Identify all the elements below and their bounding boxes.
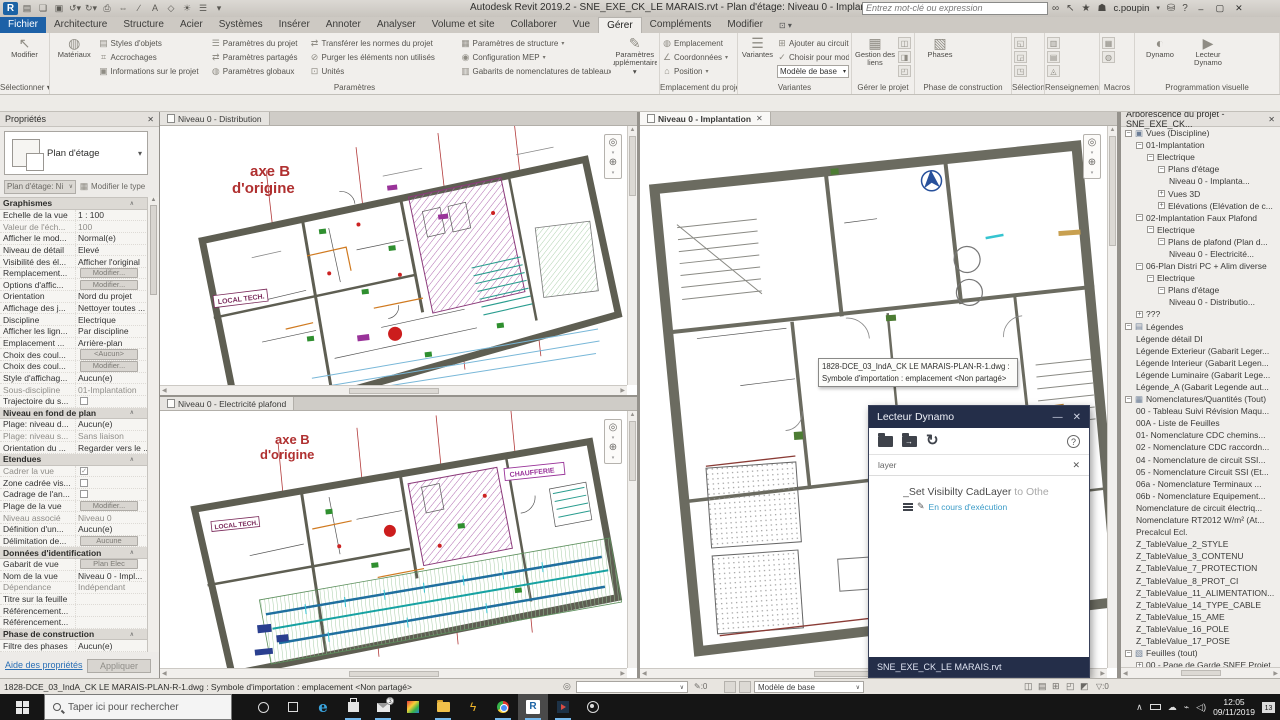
- ribbon-tool-img-icon[interactable]: ◫: [898, 37, 911, 49]
- tree-item[interactable]: Z_TableValue_17_POSE: [1123, 635, 1278, 647]
- ribbon-button-gabarits-de-nomenclatures-de-tableaux[interactable]: ▥Gabarits de nomenclatures de tableaux▾: [461, 64, 611, 78]
- taskbar-icon-obs[interactable]: [578, 694, 608, 720]
- property-value[interactable]: [76, 479, 148, 487]
- property-label: Référencement...: [0, 605, 76, 616]
- floor-plan-doc-icon: [647, 114, 655, 123]
- dynamo-refresh-icon[interactable]: ↻: [926, 433, 939, 449]
- ribbon-tool-selid-icon[interactable]: ▤: [1047, 51, 1060, 63]
- tree-item[interactable]: −02-Implantation Faux Plafond: [1123, 212, 1278, 224]
- ribbon-button-variantes[interactable]: ☰Variantes: [740, 34, 775, 82]
- property-row: Affichage des j...Nettoyer toutes ...: [0, 303, 148, 315]
- property-checkbox[interactable]: [80, 479, 88, 487]
- steering-wheel-icon[interactable]: ◎: [609, 422, 618, 434]
- property-row: Définition d'un...Aucun(e): [0, 524, 148, 536]
- dynamo-script-item[interactable]: _Set Visibilty CadLayer to Othe: [903, 486, 1089, 498]
- print-icon[interactable]: ⎙: [100, 2, 114, 15]
- filter-icon-count[interactable]: ▽:0: [1096, 682, 1109, 691]
- press-drag-icon[interactable]: ▤: [1038, 681, 1047, 692]
- ribbon-button-label: Coordonnées: [674, 53, 722, 62]
- user-avatar-icon[interactable]: ☗: [1098, 1, 1107, 17]
- zoom-expand-icon[interactable]: ▾: [1091, 170, 1094, 176]
- tree-item[interactable]: −▤Légendes: [1123, 321, 1278, 333]
- horizontal-scrollbar[interactable]: ◀▶: [160, 668, 627, 678]
- horizontal-scrollbar[interactable]: ◀▶: [160, 385, 627, 395]
- properties-help-link[interactable]: Aide des propriétés: [5, 660, 83, 670]
- taskbar-icon-snagit[interactable]: ϟ: [458, 694, 488, 720]
- tree-expand-icon[interactable]: −: [1136, 263, 1143, 270]
- taskbar-search-box[interactable]: Taper ici pour rechercher: [44, 694, 232, 720]
- default-3d-view-icon[interactable]: ◇: [164, 2, 178, 15]
- taskbar-icon-store[interactable]: [338, 694, 368, 720]
- aligned-dimension-icon[interactable]: ∕: [132, 2, 146, 15]
- project-browser-hscrollbar[interactable]: ◀▶: [1121, 667, 1280, 678]
- property-value[interactable]: Modifier...: [76, 501, 148, 512]
- battery-icon[interactable]: [1150, 704, 1161, 710]
- tree-item[interactable]: 00 - Tableau Suivi Révision Maqu...: [1123, 405, 1278, 417]
- ribbon-button-phases[interactable]: ▧Phases: [917, 34, 963, 82]
- tree-item[interactable]: −Electrique: [1123, 151, 1278, 163]
- ribbon-tab-analyser[interactable]: Analyser: [369, 17, 424, 33]
- ribbon-tab-vue[interactable]: Vue: [565, 17, 598, 33]
- tree-item[interactable]: Niveau 0 - Distributio...: [1123, 296, 1278, 308]
- taskbar-icon-explorer[interactable]: [428, 694, 458, 720]
- tree-item[interactable]: +Vues 3D: [1123, 187, 1278, 199]
- measure-icon[interactable]: ⇔: [116, 2, 130, 15]
- tree-expand-icon[interactable]: +: [1158, 202, 1165, 209]
- taskbar-icon-photos[interactable]: [398, 694, 428, 720]
- zoom-icon[interactable]: ⊕: [609, 442, 617, 454]
- tree-item[interactable]: Niveau 0 - Electricité...: [1123, 248, 1278, 260]
- property-checkbox[interactable]: [80, 397, 88, 405]
- property-value[interactable]: Niveau 0 - Impl...: [76, 571, 148, 581]
- ribbon-tab-collaborer[interactable]: Collaborer: [503, 17, 565, 33]
- taskbar-icon-taskview[interactable]: [278, 694, 308, 720]
- favorites-star-icon[interactable]: ★: [1082, 1, 1091, 17]
- zoom-icon[interactable]: ⊕: [1088, 157, 1096, 169]
- tree-item-label: Plans de plafond (Plan d...: [1168, 237, 1268, 247]
- property-value[interactable]: Sans liaison: [76, 431, 148, 441]
- tree-item[interactable]: Z_TableValue_7_PROTECTION: [1123, 562, 1278, 574]
- redo-icon[interactable]: ↻▾: [84, 2, 98, 15]
- tree-item[interactable]: −Plans d'étage: [1123, 284, 1278, 296]
- taskbar-clock[interactable]: 12:05 09/11/2019: [1213, 697, 1255, 717]
- tree-item-label: Z_TableValue_11_ALIMENTATION...: [1136, 588, 1274, 598]
- vertical-scrollbar[interactable]: ▲: [627, 411, 637, 668]
- property-value[interactable]: [76, 490, 148, 498]
- ribbon-tab-structure[interactable]: Structure: [115, 17, 172, 33]
- group-label: Données d'identification: [3, 548, 101, 558]
- tree-item[interactable]: Z_TableValue_14_TYPE_CABLE: [1123, 599, 1278, 611]
- dynamo-minimize-icon[interactable]: —: [1053, 412, 1063, 423]
- ribbon-tool-savesel-icon[interactable]: ◱: [1014, 37, 1027, 49]
- tree-item[interactable]: Z_TableValue_8_PROT_CI: [1123, 574, 1278, 586]
- text-tool-icon[interactable]: A: [148, 2, 162, 15]
- property-group-header[interactable]: Niveau en fond de plan∧: [0, 408, 148, 420]
- property-value[interactable]: Afficher l'original: [76, 257, 148, 267]
- restore-button[interactable]: ▢: [1214, 3, 1226, 14]
- design-option-ribbon-combo[interactable]: Modèle de base▾: [777, 65, 849, 78]
- network-icon[interactable]: ⌁: [1184, 702, 1189, 712]
- ribbon-button-modifier[interactable]: ↖Modifier: [2, 34, 47, 82]
- tree-item[interactable]: Légende détail DI: [1123, 333, 1278, 345]
- property-group-header[interactable]: Graphismes∧: [0, 198, 148, 210]
- combo-arrow-icon: ▾: [843, 68, 846, 75]
- tree-item[interactable]: +00 - Page de Garde SNEE Projet...: [1123, 659, 1278, 667]
- property-value[interactable]: Nettoyer toutes ...: [76, 303, 148, 313]
- property-value[interactable]: Regarder vers le ...: [76, 443, 148, 453]
- taskbar-icon-chrome[interactable]: [488, 694, 518, 720]
- tree-item[interactable]: Z_TableValue_16_POLE: [1123, 623, 1278, 635]
- tree-expand-icon[interactable]: −: [1125, 650, 1132, 657]
- tree-item-label: Nomenclature de circuit électriq...: [1136, 503, 1262, 513]
- clock-time: 12:05: [1213, 697, 1255, 707]
- ribbon-tool-macrosec-icon[interactable]: ◍: [1102, 51, 1115, 63]
- property-value[interactable]: Aucune: [76, 536, 148, 547]
- exclude-options-icon[interactable]: ◫: [1024, 681, 1033, 692]
- ribbon-tab-g-rer[interactable]: Gérer: [598, 17, 642, 33]
- tree-expand-icon[interactable]: −: [1136, 142, 1143, 149]
- tree-expand-icon[interactable]: −: [1147, 275, 1154, 282]
- infocenter-search-input[interactable]: Entrez mot-clé ou expression: [862, 2, 1048, 15]
- taskbar-icon-mail[interactable]: 3: [368, 694, 398, 720]
- tree-item[interactable]: 05 - Nomenclature Circuit SSI (Et...: [1123, 466, 1278, 478]
- tree-item[interactable]: 06a - Nomenclature Terminaux ...: [1123, 478, 1278, 490]
- property-label: Nom de la vue: [0, 571, 76, 582]
- ribbon-tab-syst-mes[interactable]: Systèmes: [211, 17, 271, 33]
- property-value[interactable]: Niveau 0: [76, 513, 148, 523]
- property-edit-button[interactable]: Modifier...: [80, 280, 138, 291]
- property-value[interactable]: 1 : 100: [76, 210, 148, 220]
- search-icon[interactable]: ∞: [1052, 1, 1059, 17]
- revit-app-menu-icon[interactable]: R: [3, 2, 18, 15]
- ribbon-tab-compl-ments[interactable]: Compléments: [642, 17, 720, 33]
- tree-item-label: Precalcul Ecl.: [1136, 527, 1188, 537]
- dynamo-filter-bar[interactable]: layer ✕: [869, 455, 1089, 476]
- design-option-combo[interactable]: Modèle de base∨: [754, 681, 864, 693]
- drawing-canvas-distribution[interactable]: axe B d'origine: [160, 126, 637, 395]
- open-icon[interactable]: ❏: [36, 2, 50, 15]
- tree-expand-icon[interactable]: −: [1158, 287, 1165, 294]
- property-row: Remplacement...Modifier...: [0, 268, 148, 280]
- tree-item[interactable]: Z_TableValue_11_ALIMENTATION...: [1123, 587, 1278, 599]
- ribbon-button-gestion-des-liens[interactable]: ▦Gestion des liens: [854, 34, 896, 82]
- ribbon-tab-architecture[interactable]: Architecture: [46, 17, 115, 33]
- property-edit-button[interactable]: Modifier...: [80, 361, 138, 372]
- ribbon-button-param-tres-de-structure[interactable]: ▦Paramètres de structure▾: [461, 36, 611, 50]
- tree-item[interactable]: −Electrique: [1123, 224, 1278, 236]
- window-title: Autodesk Revit 2019.2 - SNE_EXE_CK_LE MA…: [470, 2, 890, 13]
- taskbar-icon-revit[interactable]: R: [518, 694, 548, 720]
- ribbon-panel-macros: ▦◍Macros: [1100, 33, 1135, 94]
- property-edit-button[interactable]: Modifier...: [80, 501, 138, 512]
- tree-item[interactable]: Z_TableValue_15_AME: [1123, 611, 1278, 623]
- property-value[interactable]: <Aucun>: [76, 349, 148, 360]
- property-value[interactable]: Modifier...: [76, 280, 148, 291]
- property-group-header[interactable]: Données d'identification∧: [0, 547, 148, 559]
- property-edit-button[interactable]: Modifier...: [80, 268, 138, 279]
- tree-item[interactable]: 04 - Nomenclature de circuit SSI...: [1123, 454, 1278, 466]
- view-tab-elec-plafond[interactable]: Niveau 0 - Electricité plafond: [160, 397, 294, 410]
- ribbon-button-label: Paramètres du projet: [223, 39, 298, 48]
- ribbon-button-accrochages[interactable]: ⌗Accrochages: [99, 50, 209, 64]
- design-option-icon[interactable]: [739, 681, 751, 693]
- ribbon-button-choisir-pour-modifier[interactable]: ✓Choisir pour modifier: [777, 50, 849, 64]
- user-dropdown-icon[interactable]: ▾: [1156, 1, 1160, 17]
- dynamo-close-icon[interactable]: ✕: [1073, 412, 1081, 423]
- select-by-face-icon[interactable]: ◩: [1080, 681, 1089, 692]
- property-value[interactable]: Aucun(e): [76, 524, 148, 534]
- tree-item-label: Nomenclature RT2012 W/m² (At...: [1136, 515, 1264, 525]
- property-value[interactable]: Modifier...: [76, 361, 148, 372]
- ribbon-tool-ids-icon[interactable]: ▥: [1047, 37, 1060, 49]
- ribbon-button-coordonn-es[interactable]: ∠Coordonnées▾: [662, 50, 735, 64]
- element-filter-combo[interactable]: Plan d'étage: Ni∨: [4, 180, 76, 194]
- view-tab-implantation[interactable]: Niveau 0 - Implantation ✕: [640, 112, 771, 125]
- script-edit-icon[interactable]: ✎: [917, 501, 925, 512]
- ribbon-button-param-tres-partag-s[interactable]: ⇄Paramètres partagés: [211, 50, 308, 64]
- volume-icon[interactable]: ◁): [1196, 702, 1206, 712]
- tree-item[interactable]: Niveau 0 - Implanta...: [1123, 175, 1278, 187]
- help-icon[interactable]: ?: [1182, 1, 1188, 17]
- ribbon-tool-loadsel-icon[interactable]: ◲: [1014, 51, 1027, 63]
- project-browser-close-icon[interactable]: ✕: [1268, 115, 1275, 124]
- type-selector[interactable]: Plan d'étage ▾: [4, 131, 148, 175]
- properties-close-icon[interactable]: ✕: [147, 115, 154, 124]
- signed-in-user[interactable]: c.poupin: [1113, 3, 1149, 14]
- ribbon-button-label: Choisir pour modifier: [789, 53, 849, 62]
- ribbon-button-position[interactable]: ⌂Position▾: [662, 64, 735, 78]
- steering-wheel-icon[interactable]: ◎: [609, 137, 618, 149]
- ribbon-tab-modifier[interactable]: Modifier: [719, 17, 771, 33]
- undo-icon[interactable]: ↺▾: [68, 2, 82, 15]
- dynamo-filter-clear-icon[interactable]: ✕: [1072, 460, 1080, 471]
- tree-item[interactable]: −Electrique: [1123, 272, 1278, 284]
- ribbon-tool-decal-icon[interactable]: ◨: [898, 51, 911, 63]
- tree-item[interactable]: −▦Nomenclatures/Quantités (Tout): [1123, 393, 1278, 405]
- worksets-icon[interactable]: ◎: [563, 681, 571, 692]
- property-value[interactable]: 100: [76, 222, 148, 232]
- svg-text:d'origine: d'origine: [232, 180, 295, 197]
- apply-button[interactable]: Appliquer: [87, 659, 151, 673]
- ribbon-button-lecteur-dynamo[interactable]: ▶Lecteur Dynamo: [1185, 34, 1231, 82]
- property-value[interactable]: Electrique: [76, 315, 148, 325]
- tree-item[interactable]: −▣Vues (Discipline): [1123, 127, 1278, 139]
- action-center-icon[interactable]: 13: [1262, 702, 1275, 713]
- tree-item-label: Niveau 0 - Electricité...: [1169, 249, 1254, 259]
- workset-combo[interactable]: ∨: [576, 681, 688, 693]
- navbar-expand-icon[interactable]: ▾: [1091, 150, 1094, 156]
- view-tab-bar: Niveau 0 - Electricité plafond: [160, 397, 637, 411]
- property-checkbox[interactable]: [80, 490, 88, 498]
- tree-item[interactable]: 06b - Nomenclature Equipement...: [1123, 490, 1278, 502]
- tree-item[interactable]: −▧Feuilles (tout): [1123, 647, 1278, 659]
- zoom-expand-icon[interactable]: ▾: [612, 170, 615, 176]
- zoom-expand-icon[interactable]: ▾: [612, 455, 615, 461]
- ribbon-display-toggle-icon[interactable]: ⊡ ▾: [771, 17, 792, 33]
- ribbon-panel-label: Sélectionner ▾: [0, 82, 49, 94]
- property-edit-button[interactable]: <Aucun>: [80, 349, 138, 360]
- drawing-canvas-elec-plafond[interactable]: axe B d'origine: [160, 411, 637, 678]
- tree-expand-icon[interactable]: −: [1125, 130, 1132, 137]
- group-label: Etendues: [3, 454, 41, 464]
- dynamo-title-bar[interactable]: Lecteur Dynamo — ✕: [869, 406, 1089, 428]
- property-value[interactable]: Normal(e): [76, 233, 148, 243]
- taskbar-icon-cortana[interactable]: [248, 694, 278, 720]
- tree-item[interactable]: −Plans de plafond (Plan d...: [1123, 236, 1278, 248]
- ribbon-button-param-tres-suppl-mentaires[interactable]: ✎Paramètres supplémentaires ▾: [613, 34, 658, 82]
- property-checkbox[interactable]: ✓: [80, 467, 88, 475]
- ribbon-button-unit-s[interactable]: ⊡Unités: [310, 64, 459, 78]
- ribbon-tool-start-icon[interactable]: ◰: [898, 65, 911, 77]
- ribbon-tab-ins-rer[interactable]: Insérer: [271, 17, 318, 33]
- property-row: Plage: niveau d...Aucun(e): [0, 419, 148, 431]
- ribbon-tool-macromgr-icon[interactable]: ▦: [1102, 37, 1115, 49]
- ribbon-button-styles-d-objets[interactable]: ▤Styles d'objets: [99, 36, 209, 50]
- property-value[interactable]: Nord du projet: [76, 291, 148, 301]
- ribbon-button-param-tres-globaux[interactable]: ◍Paramètres globaux: [211, 64, 308, 78]
- property-label: Choix des coul...: [0, 361, 76, 372]
- ribbon-button-informations-sur-le-projet[interactable]: ▣Informations sur le projet: [99, 64, 209, 78]
- tree-expand-icon[interactable]: −: [1158, 166, 1165, 173]
- tray-expand-icon[interactable]: ∧: [1136, 702, 1143, 712]
- property-group-header[interactable]: Phase de construction∧: [0, 629, 148, 641]
- property-value[interactable]: Aucun(e): [76, 419, 148, 429]
- ribbon-button-purger-les-l-ments-non-utilis-s[interactable]: ⊘Purger les éléments non utilisés: [310, 50, 459, 64]
- tree-item[interactable]: +Elévations (Elévation de c...: [1123, 200, 1278, 212]
- tree-item[interactable]: 01- Nomenclature CDC chemins...: [1123, 429, 1278, 441]
- property-value[interactable]: Arrière-plan: [76, 338, 148, 348]
- taskbar-icon-edge[interactable]: e: [308, 694, 338, 720]
- tree-expand-icon[interactable]: −: [1125, 323, 1132, 330]
- property-value[interactable]: Aucun(e): [76, 373, 148, 383]
- zoom-icon[interactable]: ⊕: [609, 157, 617, 169]
- tree-item[interactable]: Z_TableValue_3_CONTENU: [1123, 550, 1278, 562]
- taskbar-icon-media[interactable]: [548, 694, 578, 720]
- steering-wheel-icon[interactable]: ◎: [1088, 137, 1097, 149]
- tree-item[interactable]: 00A - Liste de Feuilles: [1123, 417, 1278, 429]
- tree-item[interactable]: 02 - Nomenclature CDC raccordn...: [1123, 441, 1278, 453]
- property-value[interactable]: 01-Implantation: [76, 385, 148, 395]
- dynamo-folder-icon[interactable]: [878, 436, 893, 447]
- tree-item[interactable]: −01-Implantation: [1123, 139, 1278, 151]
- ribbon-tool-editsel-icon[interactable]: ◳: [1014, 65, 1027, 77]
- ribbon-button-dynamo[interactable]: ◐Dynamo: [1137, 34, 1183, 82]
- ribbon-tab-annoter[interactable]: Annoter: [318, 17, 369, 33]
- property-edit-button[interactable]: Aucune: [80, 536, 138, 547]
- ribbon-button-configuration-mep[interactable]: ◉Configuration MEP▾: [461, 50, 611, 64]
- tree-item[interactable]: Légende_A (Gabarit Legende aut...: [1123, 381, 1278, 393]
- dynamo-help-icon[interactable]: ?: [1067, 435, 1080, 448]
- select-links-icon[interactable]: ⊞: [1052, 681, 1060, 692]
- property-group-header[interactable]: Etendues∧: [0, 454, 148, 466]
- property-value[interactable]: Par discipline: [76, 326, 148, 336]
- property-value[interactable]: Aucun(e): [76, 641, 148, 651]
- tree-item[interactable]: Z_TableValue_2_STYLE: [1123, 538, 1278, 550]
- close-button[interactable]: ✕: [1233, 3, 1245, 14]
- tree-expand-icon[interactable]: −: [1125, 396, 1132, 403]
- property-edit-button[interactable]: Plan Elec: [80, 559, 138, 570]
- editable-only-toggle[interactable]: [724, 681, 736, 693]
- tree-item[interactable]: −06-Plan Distri PC + Alim diverse: [1123, 260, 1278, 272]
- view-tab-distribution[interactable]: Niveau 0 - Distribution: [160, 112, 270, 125]
- property-value[interactable]: Plan Elec: [76, 559, 148, 570]
- tree-expand-icon[interactable]: −: [1158, 238, 1165, 245]
- minimize-button[interactable]: –: [1195, 4, 1207, 14]
- script-detail-icon[interactable]: [903, 503, 913, 511]
- tree-item[interactable]: Légende Luminaire (Gabarit Lege...: [1123, 369, 1278, 381]
- tree-expand-icon[interactable]: +: [1158, 190, 1165, 197]
- select-pinned-icon[interactable]: ◰: [1066, 681, 1075, 692]
- property-label: Cadrer la vue: [0, 466, 76, 477]
- app-store-cart-icon[interactable]: ⛁: [1167, 1, 1175, 17]
- property-label: Afficher le mod...: [0, 233, 76, 244]
- dropdown-arrow-icon: ▾: [705, 68, 708, 75]
- tree-item[interactable]: Nomenclature RT2012 W/m² (At...: [1123, 514, 1278, 526]
- property-row: DisciplineElectrique: [0, 314, 148, 326]
- dynamo-footer: SNE_EXE_CK_LE MARAIS.rvt: [869, 657, 1089, 677]
- save-icon[interactable]: ▣: [52, 2, 66, 15]
- dynamo-change-folder-icon[interactable]: [902, 436, 917, 447]
- ribbon-tab-acier[interactable]: Acier: [172, 17, 211, 33]
- tree-item[interactable]: Precalcul Ecl.: [1123, 526, 1278, 538]
- coordonn-es-icon: ∠: [662, 52, 672, 63]
- view-tab-close-icon[interactable]: ✕: [756, 114, 763, 123]
- properties-scrollbar[interactable]: ▲: [147, 197, 159, 652]
- property-value[interactable]: Modifier...: [76, 268, 148, 279]
- navbar-expand-icon[interactable]: ▾: [612, 435, 615, 441]
- ribbon-tab-fichier[interactable]: Fichier: [0, 17, 46, 33]
- property-value[interactable]: ✓: [76, 467, 148, 475]
- tree-item-label: Feuilles (tout): [1146, 648, 1198, 658]
- ribbon-button-mat-riaux[interactable]: ◍Matériaux: [52, 34, 97, 82]
- tree-expand-icon[interactable]: +: [1136, 311, 1143, 318]
- vertical-scrollbar[interactable]: ▲: [1107, 126, 1117, 668]
- tree-item[interactable]: Légende Interieur (Gabarit Legen...: [1123, 357, 1278, 369]
- ribbon-button-transf-rer-les-normes-du-projet[interactable]: ⇄Transférer les normes du projet: [310, 36, 459, 50]
- edit-type-button[interactable]: ▦Modifier le type: [79, 181, 145, 192]
- menu-icon[interactable]: ▤: [20, 2, 34, 15]
- start-button[interactable]: [0, 694, 44, 720]
- tree-item[interactable]: Nomenclature de circuit électriq...: [1123, 502, 1278, 514]
- tree-item[interactable]: +???: [1123, 308, 1278, 320]
- tree-item-label: Légende_A (Gabarit Legende aut...: [1136, 382, 1269, 392]
- explorer-icon: [437, 702, 450, 712]
- tree-item-label: Z_TableValue_15_AME: [1136, 612, 1225, 622]
- tree-item[interactable]: Légende Exterieur (Gabarit Leger...: [1123, 345, 1278, 357]
- tree-expand-icon[interactable]: −: [1147, 154, 1154, 161]
- property-value[interactable]: Elevé: [76, 245, 148, 255]
- thin-lines-icon[interactable]: ☰: [196, 2, 210, 15]
- tree-expand-icon[interactable]: −: [1136, 214, 1143, 221]
- onedrive-cloud-icon[interactable]: ☁: [1168, 702, 1177, 712]
- ribbon-button-ajouter-au-circuit[interactable]: ⊞Ajouter au circuit: [777, 36, 849, 50]
- sun-settings-icon[interactable]: ☀: [180, 2, 194, 15]
- ribbon-button-label: Dynamo: [1146, 51, 1174, 59]
- property-value[interactable]: [76, 397, 148, 405]
- ribbon-tool-warn-icon[interactable]: ◬: [1047, 65, 1060, 77]
- type-selector-dropdown-icon[interactable]: ▾: [138, 149, 147, 158]
- navbar-expand-icon[interactable]: ▾: [612, 150, 615, 156]
- customize-qat-icon[interactable]: ▾: [212, 2, 226, 15]
- subscription-icon[interactable]: ↖: [1066, 1, 1074, 17]
- tree-item[interactable]: −Plans d'étage: [1123, 163, 1278, 175]
- ribbon-button-emplacement[interactable]: ◍Emplacement: [662, 36, 735, 50]
- property-value[interactable]: Indépendant: [76, 582, 148, 592]
- ribbon-button-param-tres-du-projet[interactable]: ☰Paramètres du projet: [211, 36, 308, 50]
- tree-expand-icon[interactable]: −: [1147, 226, 1154, 233]
- ribbon-tab-volume-et-site[interactable]: Volume et site: [424, 17, 503, 33]
- vertical-scrollbar[interactable]: ▲: [627, 126, 637, 385]
